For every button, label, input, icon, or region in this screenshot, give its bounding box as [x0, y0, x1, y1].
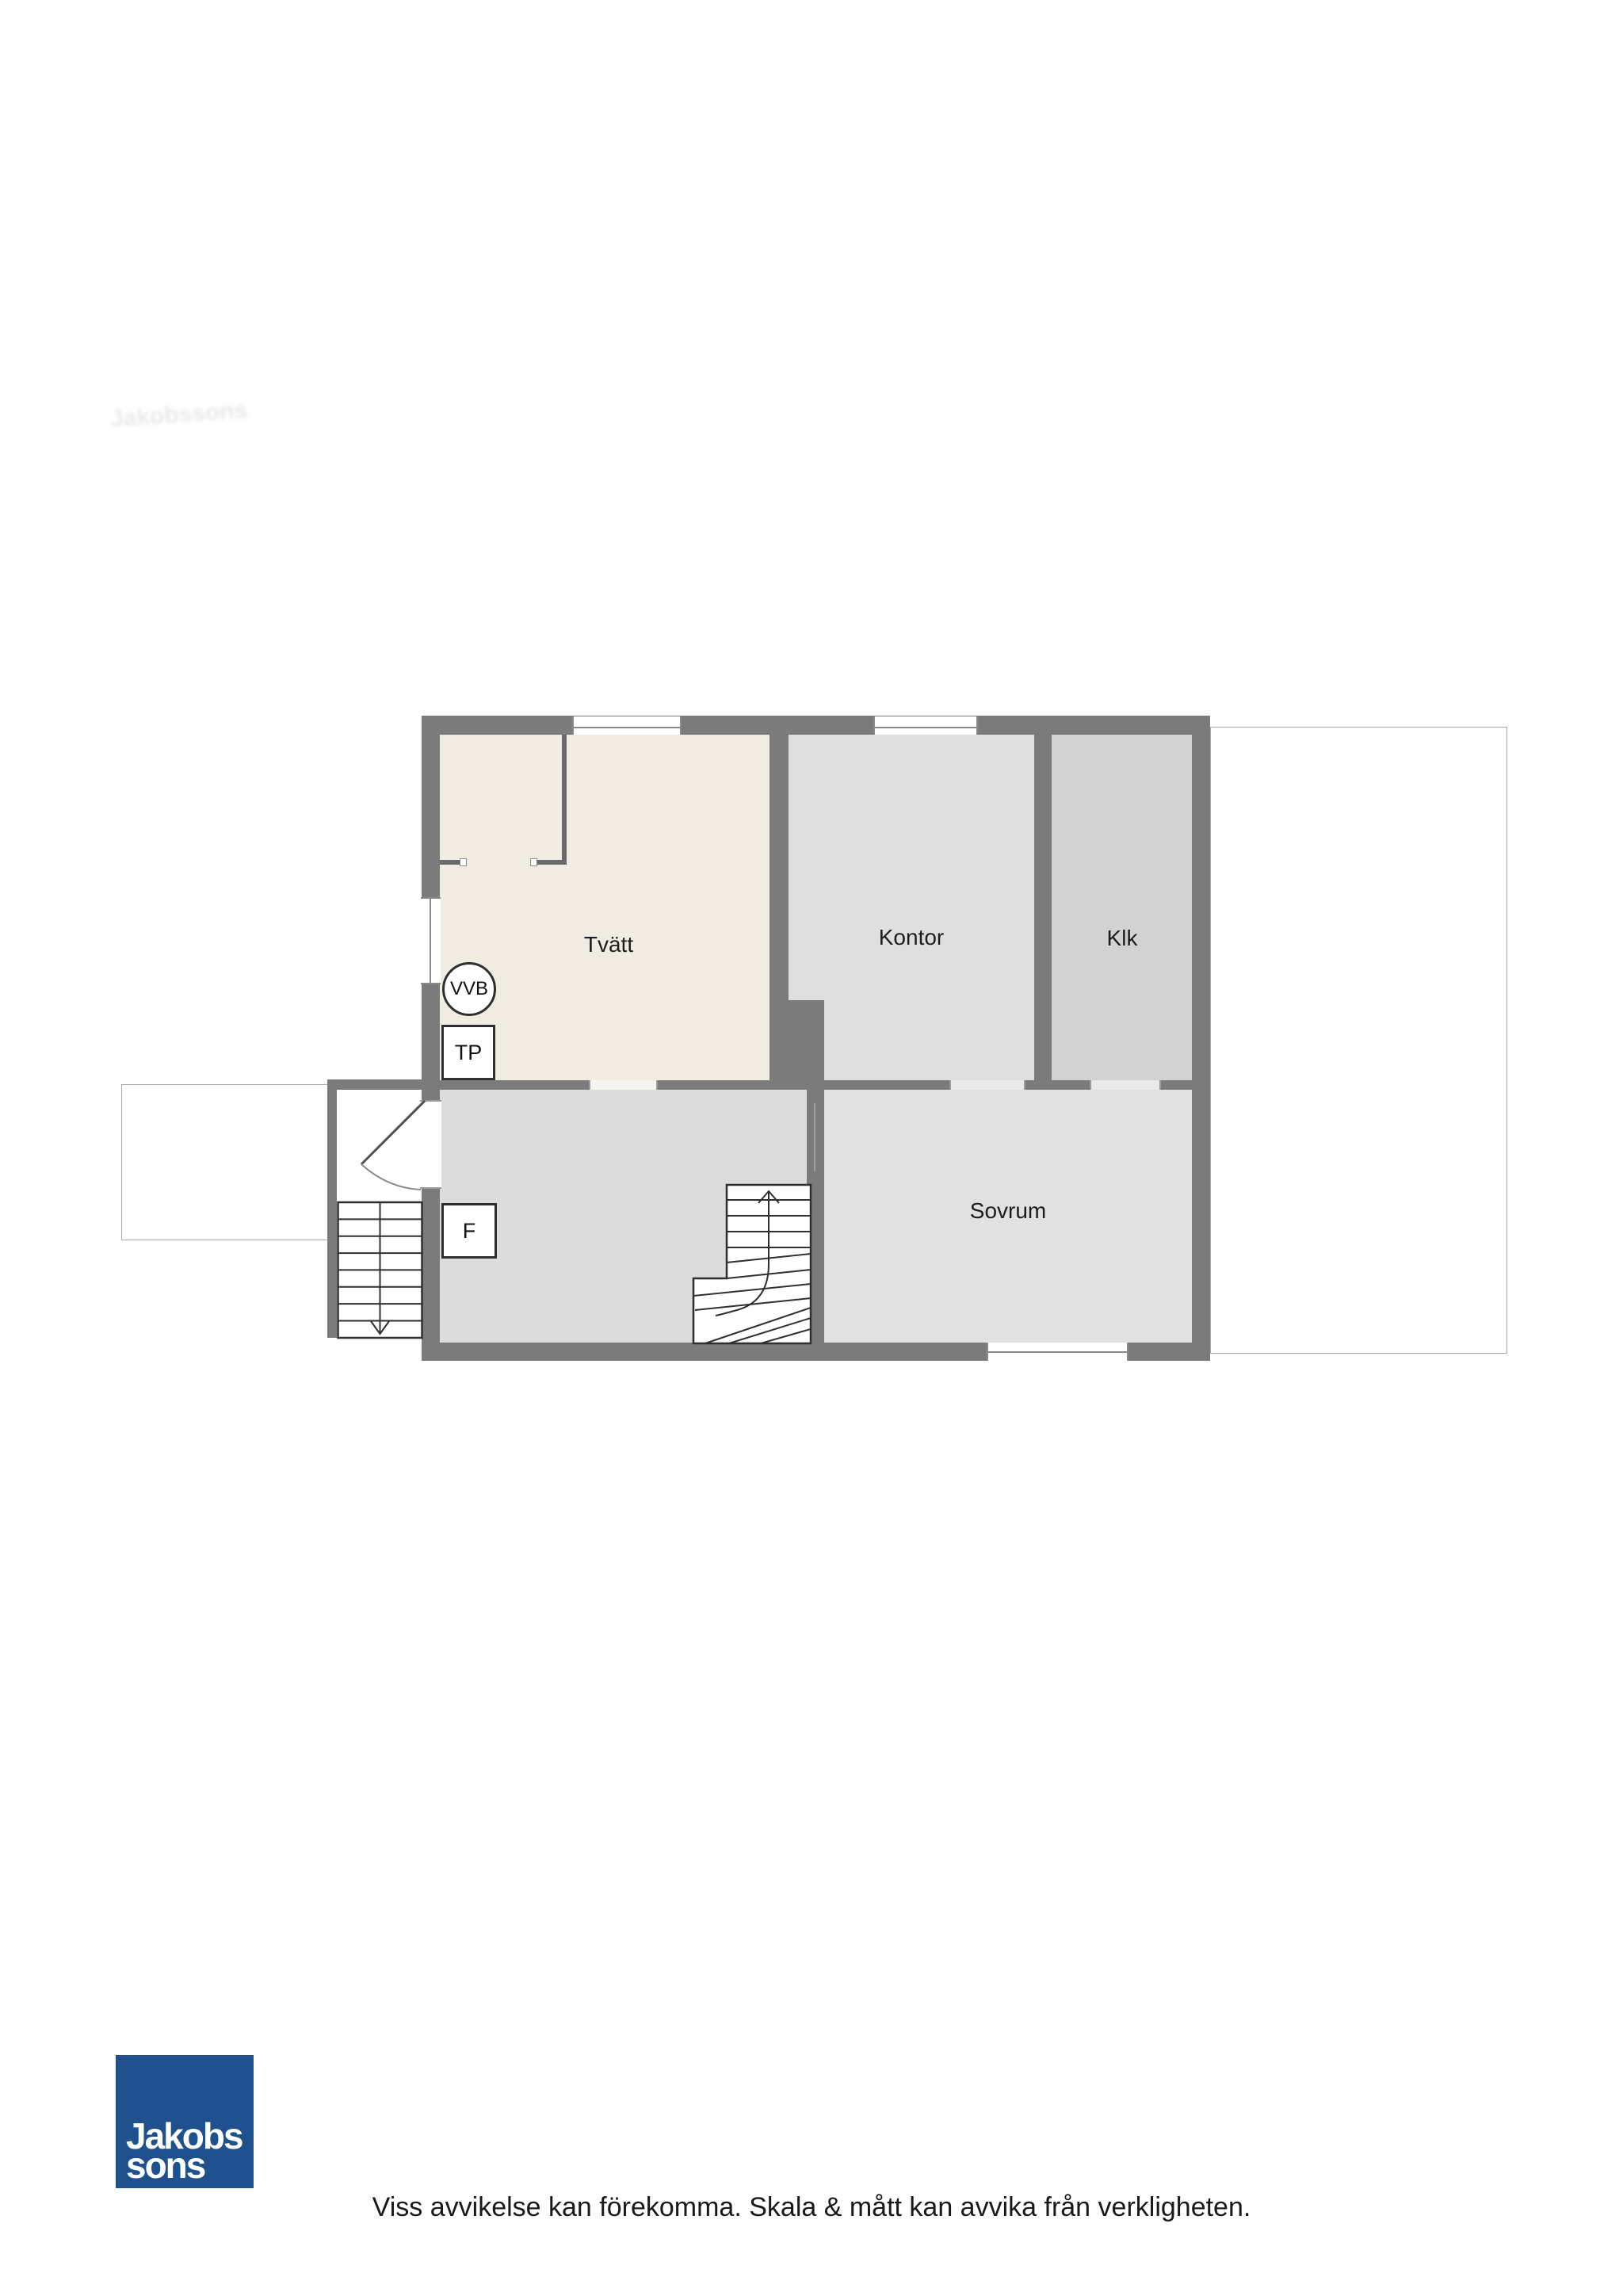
room-label-klk: Klk — [1107, 926, 1138, 951]
door-leaf — [361, 1101, 425, 1164]
plan-linework — [0, 0, 1623, 2296]
interior-stairs — [693, 1185, 811, 1343]
room-label-kontor: Kontor — [879, 925, 945, 950]
room-label-sovrum: Sovrum — [970, 1198, 1046, 1224]
door-swing-arc-icon — [361, 1164, 421, 1190]
entry-door-swing — [361, 1101, 425, 1190]
floorplan-page: Jakobssons VVB TP — [0, 0, 1623, 2296]
exterior-stairs — [338, 1202, 422, 1338]
agency-logo-text: Jakobs sons — [116, 2122, 242, 2188]
interior-stairs-outline — [693, 1185, 811, 1343]
room-label-tvatt: Tvätt — [584, 932, 633, 957]
disclaimer-text: Viss avvikelse kan förekomma. Skala & må… — [372, 2192, 1251, 2223]
agency-logo: Jakobs sons — [116, 2055, 254, 2188]
